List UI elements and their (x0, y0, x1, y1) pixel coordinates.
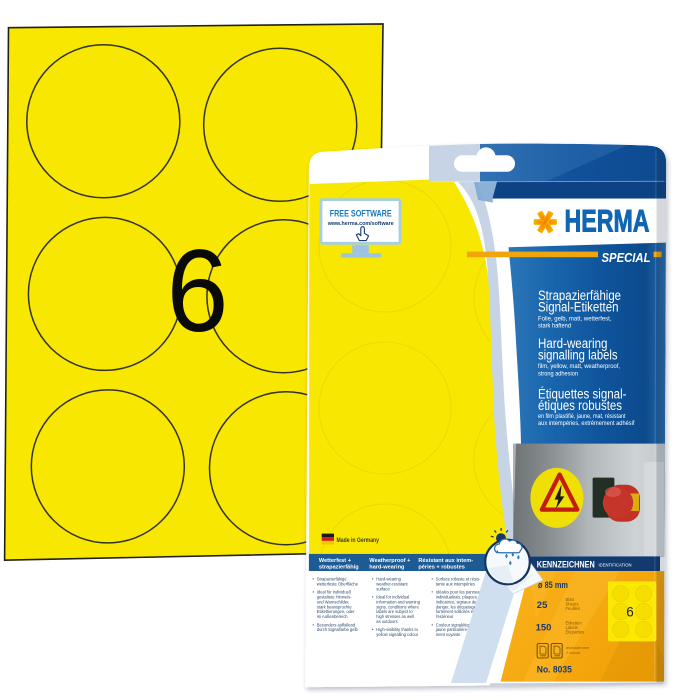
svg-text:25: 25 (537, 600, 548, 611)
svg-text:150: 150 (536, 623, 552, 634)
svg-text:péries + robustes: péries + robustes (418, 564, 464, 570)
svg-text:Wetterfest +: Wetterfest + (319, 558, 352, 564)
svg-text:yellow signalling colour: yellow signalling colour (376, 632, 419, 637)
svg-text:IDENTIFICATION: IDENTIFICATION (599, 562, 632, 567)
svg-text:wetterfeste Oberfläche: wetterfeste Oberfläche (317, 581, 359, 586)
svg-text:6: 6 (167, 226, 229, 356)
svg-text:FREE SOFTWARE: FREE SOFTWARE (330, 209, 392, 219)
svg-text:tante aux intempéries: tante aux intempéries (436, 581, 475, 586)
svg-text:stark haftend: stark haftend (538, 323, 571, 330)
svg-text:No. 8035: No. 8035 (537, 665, 573, 676)
svg-text:Weatherproof +: Weatherproof + (369, 558, 411, 564)
svg-text:ment voyante: ment voyante (436, 632, 461, 637)
svg-text:étiques robustes: étiques robustes (538, 398, 622, 413)
svg-text:6: 6 (626, 604, 634, 619)
svg-text:durch Signalfarbe gelb: durch Signalfarbe gelb (317, 627, 359, 632)
svg-text:Folie, gelb, matt, wetterfest,: Folie, gelb, matt, wetterfest, (538, 315, 612, 322)
svg-text:as outdoors: as outdoors (376, 619, 397, 624)
svg-text:HERMA: HERMA (565, 203, 650, 239)
svg-text:www.herma.com/software: www.herma.com/software (327, 221, 394, 227)
svg-text:Résistant aux intem-: Résistant aux intem- (418, 558, 473, 564)
svg-text:Feuilles: Feuilles (566, 606, 580, 611)
svg-text:surface: surface (376, 586, 390, 591)
svg-text:strapazierfähig: strapazierfähig (319, 564, 359, 570)
svg-text:l'extérieur: l'extérieur (436, 614, 454, 619)
svg-text:strong adhesion: strong adhesion (538, 370, 578, 377)
svg-text:KENNZEICHNEN: KENNZEICHNEN (537, 559, 595, 569)
svg-text:ø 85 mm: ø 85 mm (538, 580, 568, 590)
svg-text:+ colour: + colour (566, 650, 581, 655)
svg-text:hard-wearing: hard-wearing (369, 564, 405, 570)
svg-text:en film plastifié, jaune, mat,: en film plastifié, jaune, mat, résistant (538, 413, 626, 420)
svg-text:SPECIAL: SPECIAL (602, 250, 651, 265)
svg-text:film, yellow, matt, weatherpro: film, yellow, matt, weatherproof, (538, 363, 620, 370)
svg-text:aux intempéries, extrêmement a: aux intempéries, extrêmement adhésif (538, 420, 635, 427)
svg-text:Signal-Etiketten: Signal-Etiketten (538, 300, 619, 315)
svg-text:im Außenbereich: im Außenbereich (317, 614, 348, 619)
svg-text:Made in Germany: Made in Germany (337, 538, 380, 544)
svg-text:Étiquettes: Étiquettes (566, 629, 585, 634)
svg-text:signalling labels: signalling labels (538, 348, 618, 363)
